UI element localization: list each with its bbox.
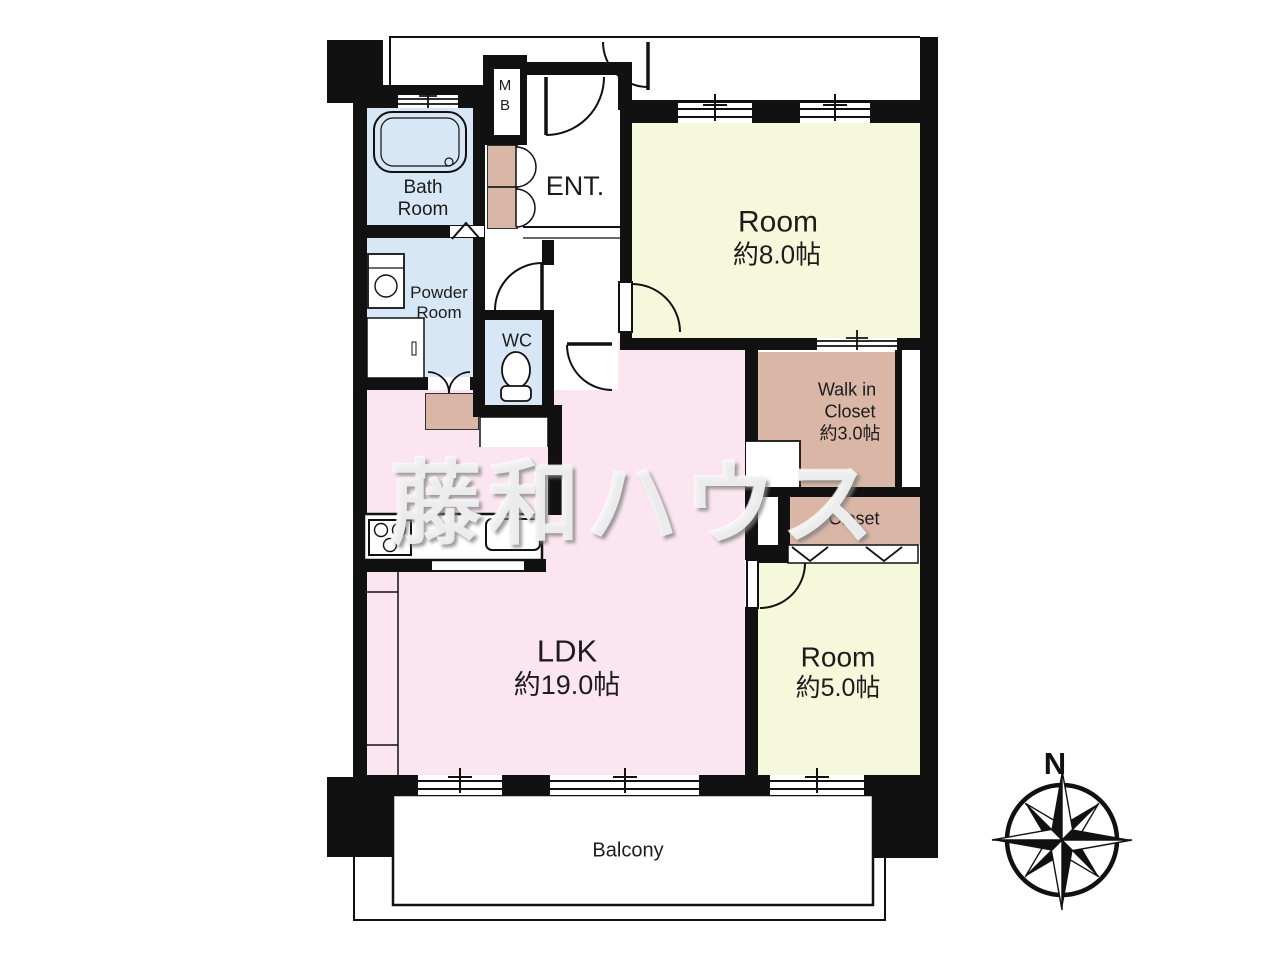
compass-rose-icon xyxy=(992,770,1132,910)
powder-label: Powder xyxy=(410,284,468,302)
mb-label-2: B xyxy=(500,98,510,114)
linen-cabinet xyxy=(425,393,479,430)
ldk-size: 約19.0帖 xyxy=(514,671,621,699)
wall-room8-bottom-east xyxy=(897,338,938,350)
mb-label: M xyxy=(499,78,512,94)
wall-ldk-east-lower xyxy=(745,607,758,775)
ldk-label: LDK xyxy=(537,636,597,669)
wall-balcony-right-block xyxy=(873,790,938,858)
powder-label-2: Room xyxy=(416,304,461,322)
entrance-step-lines xyxy=(523,227,620,238)
room8-label: Room xyxy=(738,206,818,238)
shoe-cabinet-lower xyxy=(487,187,518,229)
compass-north-label: N xyxy=(1044,746,1066,782)
wall-room8-left-lower xyxy=(620,332,632,350)
wall-entrance-top xyxy=(523,62,623,75)
wall-wc-bottom xyxy=(478,405,554,417)
wall-bottom xyxy=(353,775,938,795)
watermark-text: 藤和ハウス xyxy=(285,430,985,563)
wall-hall-west xyxy=(473,85,485,417)
floor-plan-page: Bath Room Powder Room WC M B ENT. Room 約… xyxy=(0,0,1280,960)
wic-label-2: Closet xyxy=(824,403,875,422)
shoe-cabinet-door-icon xyxy=(516,145,536,227)
bath-label-2: Room xyxy=(398,200,449,220)
wc-label: WC xyxy=(502,332,532,351)
wall-powder-bottom xyxy=(353,377,485,390)
wall-wc-right xyxy=(542,310,554,417)
wall-bath-top xyxy=(367,85,490,108)
wall-room8-bottom-west xyxy=(632,338,817,350)
wall-bath-powder-divider xyxy=(353,225,485,238)
room8-size: 約8.0帖 xyxy=(733,241,821,268)
wall-room8-left-upper xyxy=(620,108,632,282)
wic-label: Walk in xyxy=(818,381,876,400)
balcony-label: Balcony xyxy=(592,841,663,862)
room5-label: Room xyxy=(801,642,876,671)
wall-vestibule xyxy=(542,240,554,265)
entry-hall-door-icon xyxy=(546,77,604,135)
entrance-label: ENT. xyxy=(546,172,605,200)
room5-size: 約5.0帖 xyxy=(796,675,881,701)
wall-right xyxy=(920,37,938,790)
shoe-cabinet-upper xyxy=(487,145,518,187)
wall-balcony-left-block xyxy=(327,777,393,857)
wall-room8-top xyxy=(620,100,938,123)
corridor-outline xyxy=(390,37,920,85)
bath-label: Bath xyxy=(403,178,442,198)
